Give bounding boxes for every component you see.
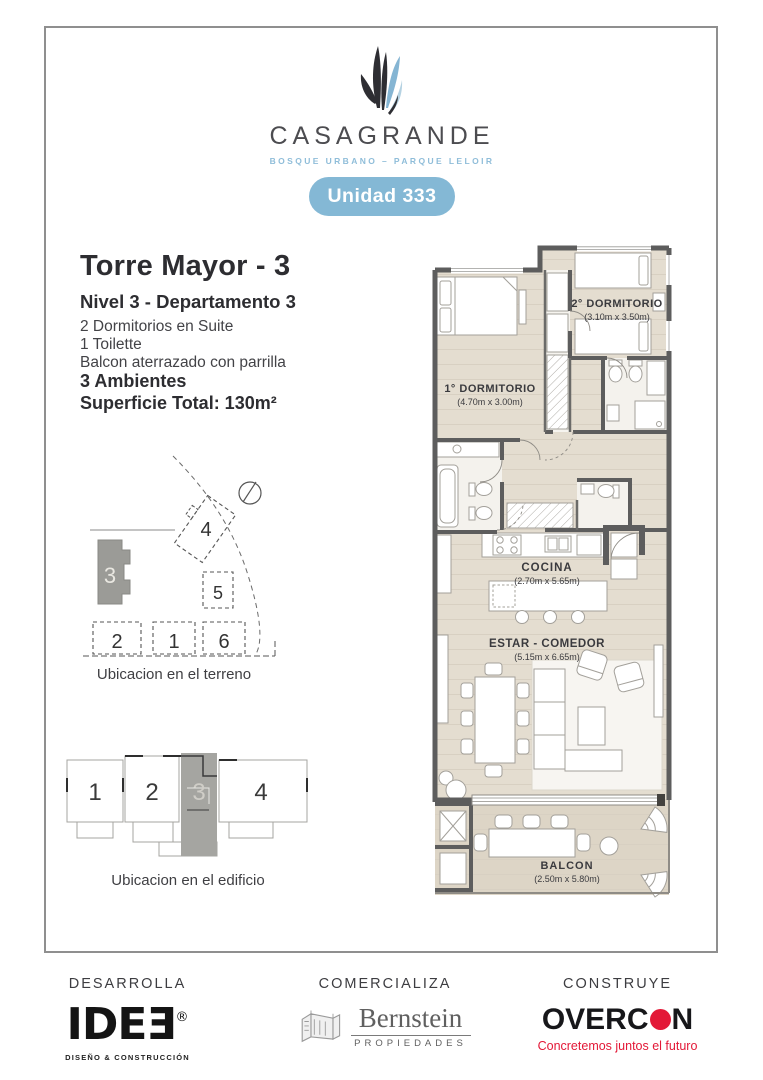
footer-desarrolla: DESARROLLA IDEƎ® DISEÑO & CONSTRUCCIÓN (40, 976, 215, 1062)
svg-text:2: 2 (145, 779, 158, 806)
footer-role-comercializa: COMERCIALIZA (319, 976, 452, 992)
room-label-dorm1: 1° DORMITORIO (444, 383, 535, 395)
room-dims-dorm1: (4.70m x 3.00m) (457, 397, 523, 407)
footer-role-construye: CONSTRUYE (563, 976, 672, 992)
overcon-logo: OVERCN (542, 1005, 693, 1035)
room-dims-balcon: (2.50m x 5.80m) (534, 874, 600, 884)
svg-text:1: 1 (168, 631, 179, 653)
page-subtitle: Nivel 3 - Departamento 3 (80, 291, 296, 313)
feature-item: Balcon aterrazado con parrilla (80, 354, 286, 372)
page-title: Torre Mayor - 3 (80, 250, 290, 283)
feature-item: 1 Toilette (80, 336, 286, 354)
footer-role-desarrolla: DESARROLLA (69, 976, 187, 992)
idee-logo: IDEƎ® (66, 1003, 188, 1047)
room-label-estar: ESTAR - COMEDOR (489, 638, 605, 650)
svg-text:3: 3 (192, 779, 205, 806)
overcon-red-dot-icon (650, 1009, 671, 1030)
bernstein-building-icon (300, 1008, 344, 1046)
rooms-count: 3 Ambientes (80, 371, 186, 392)
bernstein-tagline: PROPIEDADES (354, 1038, 467, 1049)
room-label-cocina: COCINA (521, 562, 572, 574)
feature-item: 2 Dormitorios en Suite (80, 318, 286, 336)
room-dims-estar: (5.15m x 6.65m) (514, 652, 580, 662)
floor-plan: 1° DORMITORIO (4.70m x 3.00m) 2° DORMITO… (427, 245, 677, 905)
svg-text:2: 2 (111, 631, 122, 653)
footer-comercializa: COMERCIALIZA Bernstein PROPIEDADES (295, 976, 475, 1049)
brand-tagline: BOSQUE URBANO – PARQUE LELOIR (44, 156, 720, 166)
site-building-3-highlight: 3 (98, 540, 130, 604)
svg-text:3: 3 (104, 563, 116, 588)
svg-text:5: 5 (213, 583, 223, 603)
idee-tagline: DISEÑO & CONSTRUCCIÓN (65, 1053, 190, 1062)
site-plan-diagram: 3 4 5 2 1 6 (75, 452, 295, 662)
svg-text:1: 1 (88, 779, 101, 806)
building-plan-diagram: 1 2 3 4 (63, 748, 315, 863)
building-plan-caption: Ubicacion en el edificio (68, 872, 308, 889)
svg-text:6: 6 (218, 631, 229, 653)
svg-text:4: 4 (200, 519, 211, 541)
unit-badge: Unidad 333 (309, 177, 455, 216)
footer-construye: CONSTRUYE OVERCN Concretemos juntos el f… (525, 976, 710, 1053)
room-label-dorm2: 2° DORMITORIO (571, 298, 662, 310)
overcon-tagline: Concretemos juntos el futuro (538, 1039, 698, 1053)
room-dims-cocina: (2.70m x 5.65m) (514, 576, 580, 586)
bernstein-divider (351, 1035, 471, 1036)
total-area: Superficie Total: 130m² (80, 393, 277, 414)
site-plan-caption: Ubicacion en el terreno (64, 666, 284, 683)
feature-list: 2 Dormitorios en Suite 1 Toilette Balcon… (80, 318, 286, 372)
brand-wordmark: CASAGRANDE (44, 122, 720, 151)
room-dims-dorm2: (3.10m x 3.50m) (584, 312, 650, 322)
room-label-balcon: BALCON (540, 860, 593, 872)
bernstein-logo: Bernstein PROPIEDADES (300, 1005, 471, 1049)
bernstein-name: Bernstein (359, 1005, 462, 1032)
svg-text:4: 4 (254, 779, 267, 806)
casagrande-tree-icon (359, 44, 403, 120)
registered-mark: ® (176, 1010, 189, 1025)
